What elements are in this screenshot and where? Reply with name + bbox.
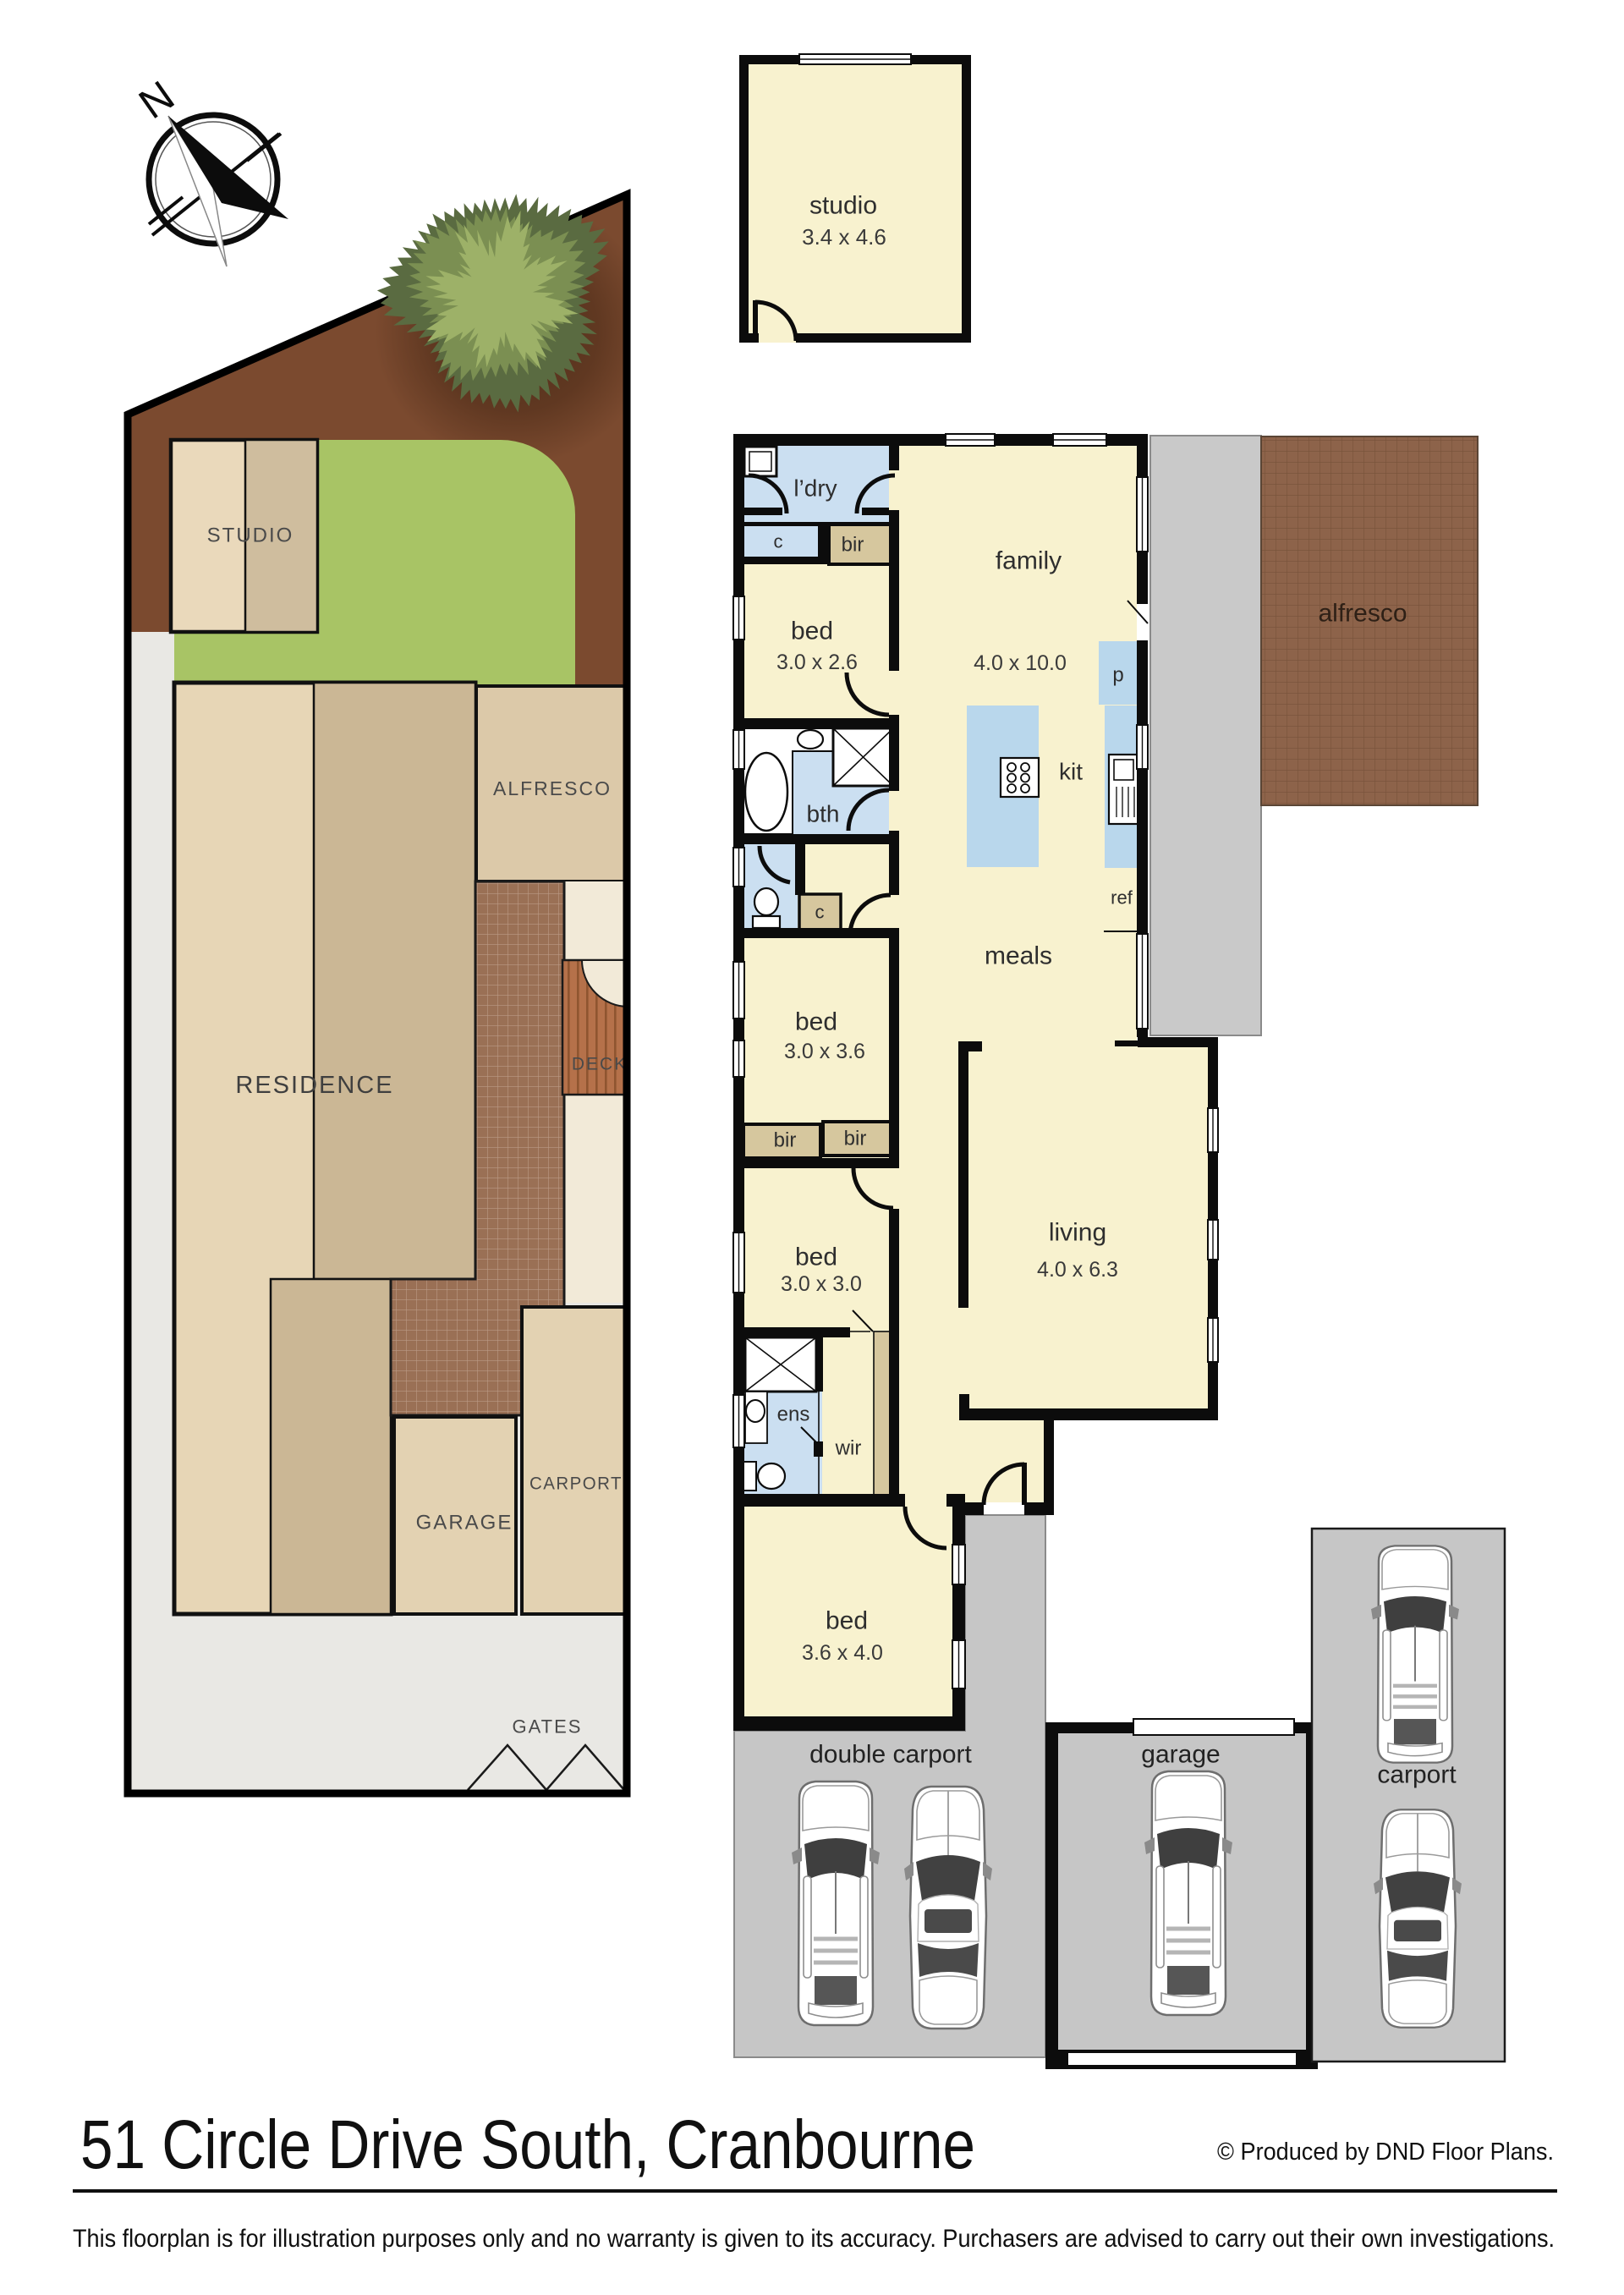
svg-text:l’dry: l’dry bbox=[793, 475, 837, 502]
svg-text:4.0 x 6.3: 4.0 x 6.3 bbox=[1037, 1258, 1118, 1282]
svg-text:RESIDENCE: RESIDENCE bbox=[235, 1072, 393, 1099]
svg-text:© Produced by DND Floor Plans.: © Produced by DND Floor Plans. bbox=[1217, 2139, 1554, 2166]
svg-text:living: living bbox=[1049, 1219, 1106, 1247]
svg-text:3.0 x 2.6: 3.0 x 2.6 bbox=[776, 651, 858, 674]
svg-text:studio: studio bbox=[809, 192, 877, 220]
svg-text:ALFRESCO: ALFRESCO bbox=[493, 777, 612, 799]
svg-text:bth: bth bbox=[807, 801, 840, 827]
svg-text:STUDIO: STUDIO bbox=[207, 524, 294, 547]
svg-text:3.0 x 3.6: 3.0 x 3.6 bbox=[784, 1040, 865, 1063]
svg-text:51 Circle Drive South, Cranbou: 51 Circle Drive South, Cranbourne bbox=[80, 2106, 975, 2183]
svg-text:garage: garage bbox=[1141, 1741, 1220, 1769]
svg-text:bed: bed bbox=[791, 618, 833, 645]
svg-text:bed: bed bbox=[795, 1244, 837, 1271]
svg-text:bir: bir bbox=[774, 1129, 797, 1152]
svg-text:3.6 x 4.0: 3.6 x 4.0 bbox=[802, 1641, 883, 1665]
svg-text:bir: bir bbox=[844, 1128, 867, 1150]
svg-text:bed: bed bbox=[826, 1607, 868, 1635]
svg-text:p: p bbox=[1112, 664, 1123, 687]
svg-text:ref: ref bbox=[1111, 887, 1133, 909]
svg-text:c: c bbox=[774, 531, 783, 552]
svg-text:GATES: GATES bbox=[513, 1716, 583, 1738]
svg-text:DECK: DECK bbox=[572, 1055, 628, 1074]
svg-text:ens: ens bbox=[777, 1403, 810, 1426]
svg-text:CARPORT: CARPORT bbox=[529, 1474, 623, 1494]
svg-text:GARAGE: GARAGE bbox=[416, 1512, 513, 1535]
svg-text:bed: bed bbox=[795, 1008, 837, 1036]
svg-text:double carport: double carport bbox=[809, 1741, 972, 1769]
svg-text:3.0 x 3.0: 3.0 x 3.0 bbox=[781, 1272, 862, 1296]
svg-text:bir: bir bbox=[842, 534, 864, 557]
svg-text:family: family bbox=[996, 547, 1062, 575]
svg-text:kit: kit bbox=[1059, 759, 1083, 785]
svg-text:3.4 x 4.6: 3.4 x 4.6 bbox=[802, 224, 886, 250]
svg-text:wir: wir bbox=[835, 1437, 862, 1460]
svg-text:carport: carport bbox=[1377, 1761, 1457, 1789]
svg-text:This floorplan is for illustra: This floorplan is for illustration purpo… bbox=[73, 2225, 1555, 2253]
svg-text:N: N bbox=[130, 72, 183, 129]
svg-text:alfresco: alfresco bbox=[1318, 600, 1407, 628]
svg-text:c: c bbox=[815, 902, 825, 923]
svg-text:4.0 x 10.0: 4.0 x 10.0 bbox=[974, 651, 1067, 675]
svg-text:meals: meals bbox=[985, 942, 1052, 970]
